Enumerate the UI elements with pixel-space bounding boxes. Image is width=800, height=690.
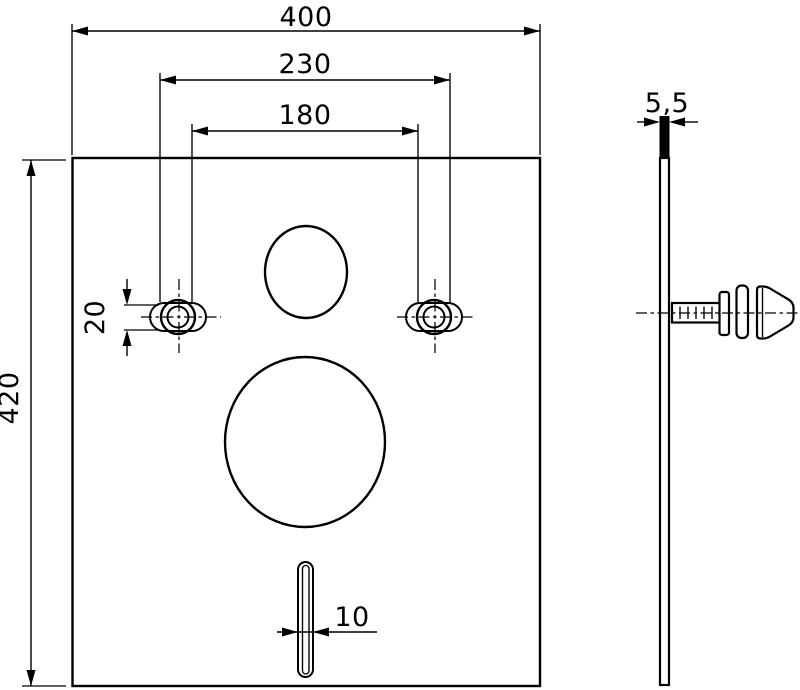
dim-plate-width-label: 400 (279, 2, 332, 33)
side-view (636, 158, 798, 685)
drawing-svg: 400 230 180 420 20 (0, 0, 800, 690)
fixing-hole-left (141, 279, 221, 353)
arrowhead-top (123, 289, 132, 305)
dim-fixing-slot-height-label: 20 (80, 300, 111, 335)
technical-drawing-canvas: 400 230 180 420 20 (0, 0, 800, 690)
arrowhead-left (282, 628, 298, 637)
dim-bottom-slot-width-label: 10 (334, 602, 369, 633)
arrowhead-right (402, 127, 418, 136)
bottom-slot-outer (298, 562, 313, 677)
dim-plate-height-label: 420 (0, 371, 25, 424)
side-plate-outline (660, 158, 669, 685)
extension-line-pair (660, 116, 670, 158)
dim-thickness-label: 5,5 (645, 88, 689, 119)
arrowhead-right (524, 27, 540, 36)
arrowhead-left (72, 27, 88, 36)
arrowhead-left (192, 127, 208, 136)
flush-pipe-opening (265, 226, 347, 318)
arrowhead-right (434, 76, 450, 85)
dim-hole-spacing-inner-label: 180 (278, 100, 331, 131)
dimension-thickness: 5,5 (637, 88, 698, 158)
dim-hole-spacing-outer-label: 230 (278, 49, 331, 80)
arrowhead-top (27, 160, 36, 176)
bottom-slot (298, 562, 313, 677)
bottom-slot-inner (303, 566, 310, 675)
plate-outline (73, 158, 541, 686)
drain-opening-circle (225, 357, 385, 527)
dimension-hole-spacing-outer: 230 (160, 49, 450, 302)
arrowhead-bottom (123, 330, 132, 346)
dimension-bottom-slot-width: 10 (277, 602, 377, 637)
washer (737, 286, 749, 339)
dimension-hole-spacing-inner: 180 (192, 100, 418, 302)
arrowhead-left (160, 76, 176, 85)
fixing-bolt-assembly (672, 286, 794, 339)
dimension-plate-height: 420 (0, 160, 66, 686)
front-view (73, 158, 541, 686)
arrowhead-right (313, 628, 329, 637)
arrowhead-bottom (27, 670, 36, 686)
fixing-hole-right (397, 279, 473, 353)
